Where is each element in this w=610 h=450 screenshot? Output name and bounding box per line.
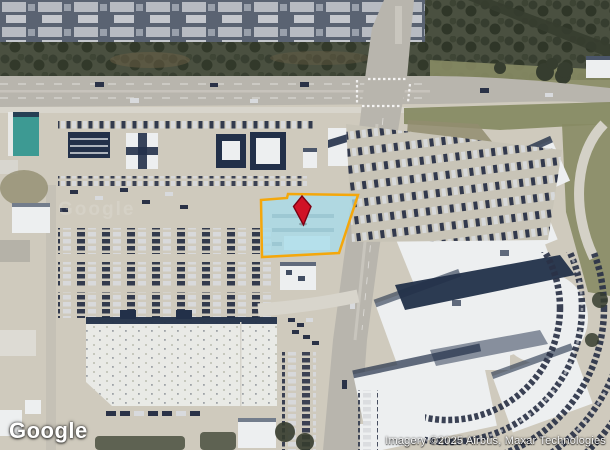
restaurant-building-b: [250, 132, 286, 170]
restaurant-building-a: [216, 134, 246, 168]
imagery-attribution: Imagery ©2025 Airbus, Maxar Technologies: [385, 435, 606, 447]
teal-roof-building: [13, 112, 39, 156]
gabled-building: [126, 133, 158, 169]
satellite-map-canvas[interactable]: Google Google Imagery ©2025 Airbus, Maxa…: [0, 0, 610, 450]
map-imagery: [0, 0, 610, 450]
outparcel-building: [280, 262, 316, 290]
loading-dock-trucks: [106, 411, 200, 416]
google-logo[interactable]: Google: [9, 418, 88, 444]
